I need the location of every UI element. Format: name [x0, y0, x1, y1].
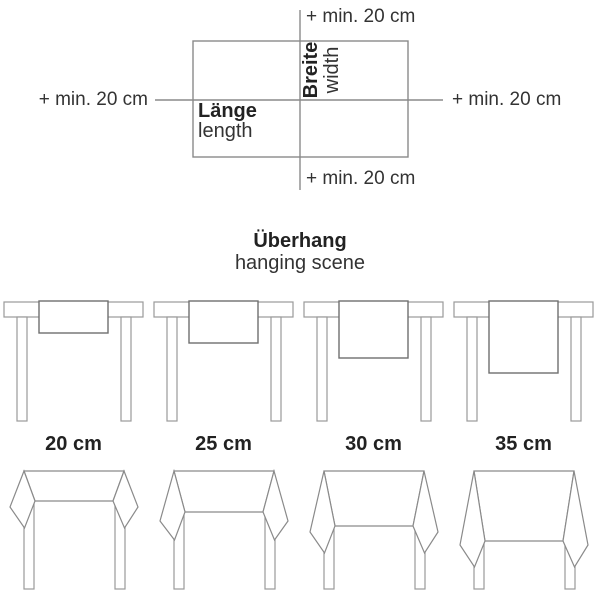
draped-table-30cm — [310, 471, 438, 589]
width-label-en: width — [322, 41, 343, 99]
annotation-left: + min. 20 cm — [38, 90, 148, 110]
annotation-bottom: + min. 20 cm — [306, 169, 415, 189]
size-label-30cm: 30 cm — [304, 433, 443, 456]
draped-table-25cm — [160, 471, 288, 589]
width-label-group: Breite width — [301, 41, 343, 99]
annotation-top: + min. 20 cm — [306, 7, 415, 27]
runner-cloth-25cm — [189, 301, 258, 343]
runner-tables-canvas — [0, 296, 600, 426]
cloth-front-panel — [474, 471, 574, 541]
draped-tables-canvas — [0, 462, 600, 600]
length-label-en: length — [198, 121, 257, 141]
table-with-runner-25cm — [154, 301, 293, 421]
cloth-front-panel — [324, 471, 424, 526]
table-with-runner-30cm — [304, 301, 443, 421]
section-title-group: Überhang hanging scene — [0, 230, 600, 274]
length-label-de: Länge — [198, 101, 257, 121]
size-label-25cm: 25 cm — [154, 433, 293, 456]
annotation-right: + min. 20 cm — [452, 90, 561, 110]
tablecloth-measurement-diagram: + min. 20 cm + min. 20 cm + min. 20 cm +… — [0, 0, 600, 600]
table-with-runner-20cm — [4, 301, 143, 421]
table-with-runner-35cm — [454, 301, 593, 421]
section-title-en: hanging scene — [0, 252, 600, 274]
runner-cloth-20cm — [39, 301, 108, 333]
draped-table-20cm — [10, 471, 138, 589]
runner-cloth-35cm — [489, 301, 558, 373]
length-label-group: Länge length — [198, 101, 257, 141]
draped-table-35cm — [460, 471, 588, 589]
cloth-front-panel — [174, 471, 274, 512]
width-label-de: Breite — [301, 41, 322, 99]
cloth-front-panel — [24, 471, 124, 501]
size-label-35cm: 35 cm — [454, 433, 593, 456]
runner-cloth-30cm — [339, 301, 408, 358]
size-label-20cm: 20 cm — [4, 433, 143, 456]
section-title-de: Überhang — [0, 230, 600, 252]
